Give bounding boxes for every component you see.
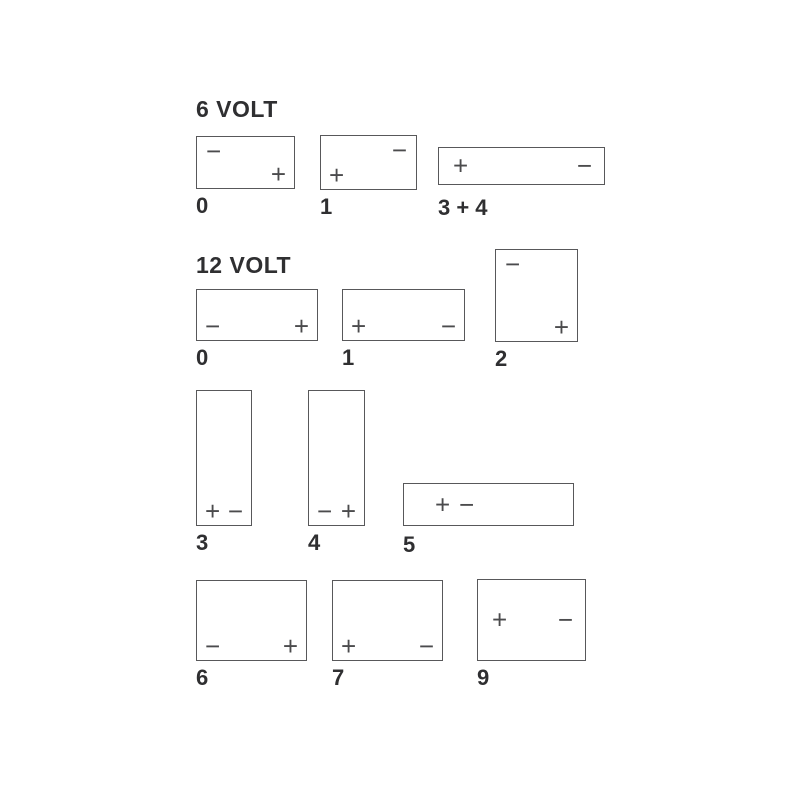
minus-terminal-icon: − — [577, 152, 592, 178]
battery-layout-diagram: 6 VOLT 12 VOLT −+0−+1+−3 + 4−+0+−1−+2+−3… — [0, 0, 800, 800]
battery-box-12v-12v9: +−9 — [477, 579, 586, 661]
minus-terminal-icon: − — [205, 313, 220, 339]
battery-box-12v-12v6: −+6 — [196, 580, 307, 661]
plus-terminal-icon: + — [554, 314, 569, 340]
battery-label: 0 — [196, 347, 208, 369]
battery-box-12v-12v4: −+4 — [308, 390, 365, 526]
plus-terminal-icon: + — [351, 313, 366, 339]
section-title-12-volt: 12 VOLT — [196, 252, 291, 279]
plus-terminal-icon: + — [205, 498, 220, 524]
plus-terminal-icon: + — [329, 162, 344, 188]
plus-terminal-icon: + — [341, 498, 356, 524]
plus-terminal-icon: + — [435, 491, 450, 517]
plus-terminal-icon: + — [492, 606, 507, 632]
minus-terminal-icon: − — [459, 491, 474, 517]
battery-box-12v-12v5: +−5 — [403, 483, 574, 526]
minus-terminal-icon: − — [441, 313, 456, 339]
battery-box-12v-12v2: −+2 — [495, 249, 578, 342]
minus-terminal-icon: − — [317, 498, 332, 524]
battery-box-12v-12v3: +−3 — [196, 390, 252, 526]
battery-box-12v-12v7: +−7 — [332, 580, 443, 661]
battery-label: 9 — [477, 667, 489, 689]
battery-label: 7 — [332, 667, 344, 689]
battery-box-12v-12v0: −+0 — [196, 289, 318, 341]
battery-label: 4 — [308, 532, 320, 554]
battery-label: 6 — [196, 667, 208, 689]
minus-terminal-icon: − — [205, 633, 220, 659]
plus-terminal-icon: + — [294, 313, 309, 339]
battery-label: 1 — [320, 196, 332, 218]
plus-terminal-icon: + — [271, 161, 286, 187]
section-title-6-volt: 6 VOLT — [196, 96, 278, 123]
minus-terminal-icon: − — [392, 137, 407, 163]
battery-label: 2 — [495, 348, 507, 370]
battery-box-6v-6v0: −+0 — [196, 136, 295, 189]
battery-label: 5 — [403, 534, 415, 556]
minus-terminal-icon: − — [419, 633, 434, 659]
battery-box-6v-6v34: +−3 + 4 — [438, 147, 605, 185]
plus-terminal-icon: + — [283, 633, 298, 659]
battery-label: 3 — [196, 532, 208, 554]
battery-box-6v-6v1: −+1 — [320, 135, 417, 190]
battery-box-12v-12v1: +−1 — [342, 289, 465, 341]
plus-terminal-icon: + — [453, 152, 468, 178]
minus-terminal-icon: − — [228, 498, 243, 524]
battery-label: 3 + 4 — [438, 197, 488, 219]
minus-terminal-icon: − — [206, 138, 221, 164]
plus-terminal-icon: + — [341, 633, 356, 659]
minus-terminal-icon: − — [505, 251, 520, 277]
minus-terminal-icon: − — [558, 606, 573, 632]
battery-label: 0 — [196, 195, 208, 217]
battery-label: 1 — [342, 347, 354, 369]
